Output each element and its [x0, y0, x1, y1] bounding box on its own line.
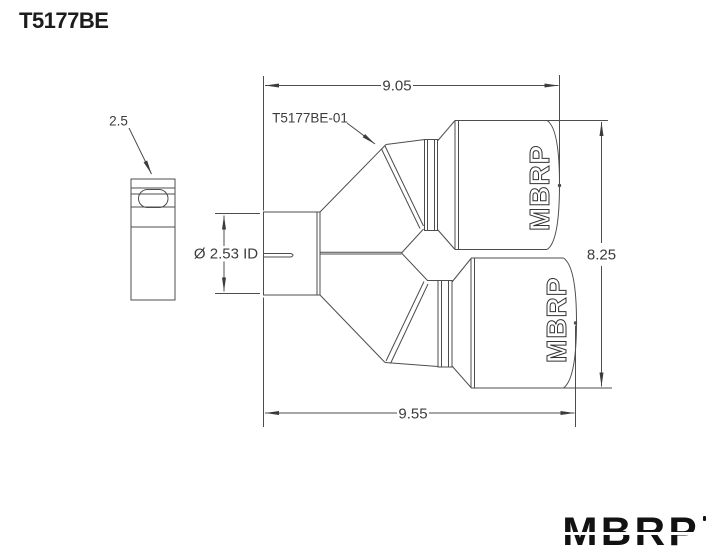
- mbrp-logo-text: MBRP: [562, 517, 700, 547]
- registered-mark: [703, 516, 706, 521]
- upper-tip-brand-engraving: MBRP: [524, 145, 555, 231]
- main-view-inlet-tube: [264, 212, 321, 295]
- inlet-slit: [264, 254, 294, 258]
- lower-tip-body: MBRP: [471, 258, 612, 388]
- clamp-slot: [139, 190, 169, 208]
- upper-clamp-band: [425, 140, 438, 231]
- leader-line: [347, 123, 375, 144]
- bottom-length-value: 9.55: [398, 406, 427, 423]
- dimension-side-width: 2.5: [109, 114, 151, 175]
- upper-branch: [320, 121, 455, 255]
- lower-tip-brand-engraving: MBRP: [541, 277, 572, 363]
- tangent-point-dot: [558, 184, 561, 187]
- drawing-page: T5177BE 2.5 Ø 2.53 ID: [0, 0, 720, 556]
- overall-height-value: 8.25: [587, 247, 616, 264]
- side-width-value: 2.5: [109, 114, 128, 129]
- dimension-overall-height: 8.25: [587, 122, 616, 387]
- inlet-diameter-value: Ø 2.53 ID: [194, 246, 258, 263]
- technical-drawing-canvas: 2.5 Ø 2.53 ID: [0, 0, 720, 556]
- mbrp-logo: MBRP: [570, 517, 700, 549]
- top-length-value: 9.05: [382, 78, 411, 95]
- side-view-inlet: [131, 179, 175, 300]
- dimension-top-length: 9.05: [264, 75, 560, 211]
- upper-tip-body: MBRP: [455, 121, 608, 250]
- dimension-bottom-length: 9.55: [264, 298, 576, 428]
- lower-clamp-band: [438, 281, 452, 368]
- lower-branch: [320, 253, 471, 388]
- part-label: T5177BE-01: [272, 111, 375, 145]
- tangent-point-dot: [574, 321, 577, 324]
- part-label-value: T5177BE-01: [272, 111, 348, 126]
- leader-line: [129, 128, 152, 174]
- dimension-inlet-diameter: Ø 2.53 ID: [194, 214, 260, 294]
